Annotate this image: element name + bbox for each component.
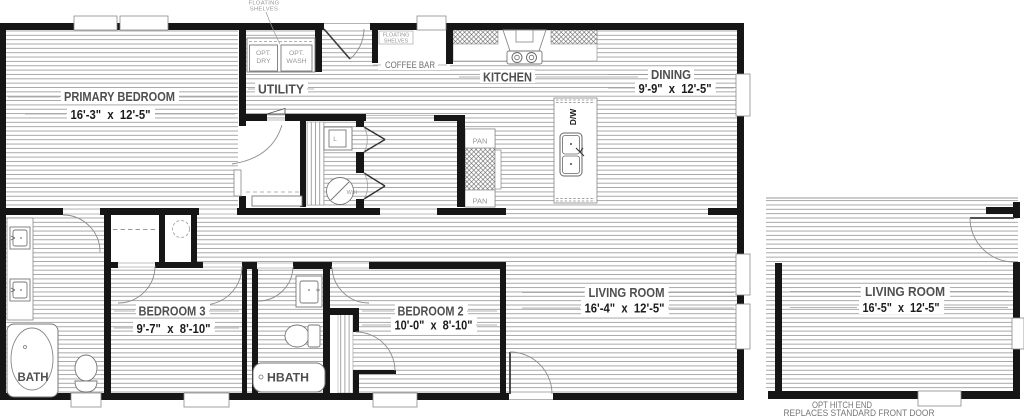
svg-text:OPT.: OPT. bbox=[289, 50, 304, 57]
svg-text:PAN: PAN bbox=[473, 197, 488, 206]
svg-text:D/W: D/W bbox=[568, 108, 578, 126]
svg-text:PAN: PAN bbox=[473, 137, 488, 146]
svg-text:LIVING ROOM: LIVING ROOM bbox=[589, 285, 665, 300]
svg-text:16'-5" x 12'-5": 16'-5" x 12'-5" bbox=[863, 300, 940, 315]
svg-text:KITCHEN: KITCHEN bbox=[483, 71, 532, 85]
svg-text:9'-9" x 12'-5": 9'-9" x 12'-5" bbox=[639, 82, 712, 96]
svg-text:16'-4" x 12'-5": 16'-4" x 12'-5" bbox=[585, 301, 665, 316]
svg-text:REPLACES STANDARD FRONT DOOR: REPLACES STANDARD FRONT DOOR bbox=[784, 408, 935, 416]
svg-text:16'-3" x 12'-5": 16'-3" x 12'-5" bbox=[71, 107, 151, 122]
svg-text:HBATH: HBATH bbox=[267, 373, 309, 385]
svg-text:COFFEE BAR: COFFEE BAR bbox=[385, 60, 435, 71]
svg-text:UTILITY: UTILITY bbox=[258, 83, 305, 97]
svg-text:10'-0" x 8'-10": 10'-0" x 8'-10" bbox=[395, 318, 473, 333]
svg-text:OPT.: OPT. bbox=[256, 50, 271, 57]
svg-text:BEDROOM 3: BEDROOM 3 bbox=[139, 305, 206, 319]
svg-text:SHELVES: SHELVES bbox=[250, 7, 278, 13]
svg-text:PRIMARY BEDROOM: PRIMARY BEDROOM bbox=[64, 89, 175, 104]
svg-text:L: L bbox=[333, 136, 337, 143]
svg-text:LIVING ROOM: LIVING ROOM bbox=[865, 284, 945, 299]
svg-text:SHELVES: SHELVES bbox=[384, 39, 409, 45]
svg-text:W/H: W/H bbox=[347, 190, 358, 196]
svg-text:DRY: DRY bbox=[256, 58, 271, 65]
svg-text:BATH: BATH bbox=[18, 372, 49, 384]
svg-text:DINING: DINING bbox=[651, 68, 691, 82]
svg-text:9'-7" x 8'-10": 9'-7" x 8'-10" bbox=[137, 321, 211, 336]
svg-text:WASH: WASH bbox=[286, 58, 306, 65]
